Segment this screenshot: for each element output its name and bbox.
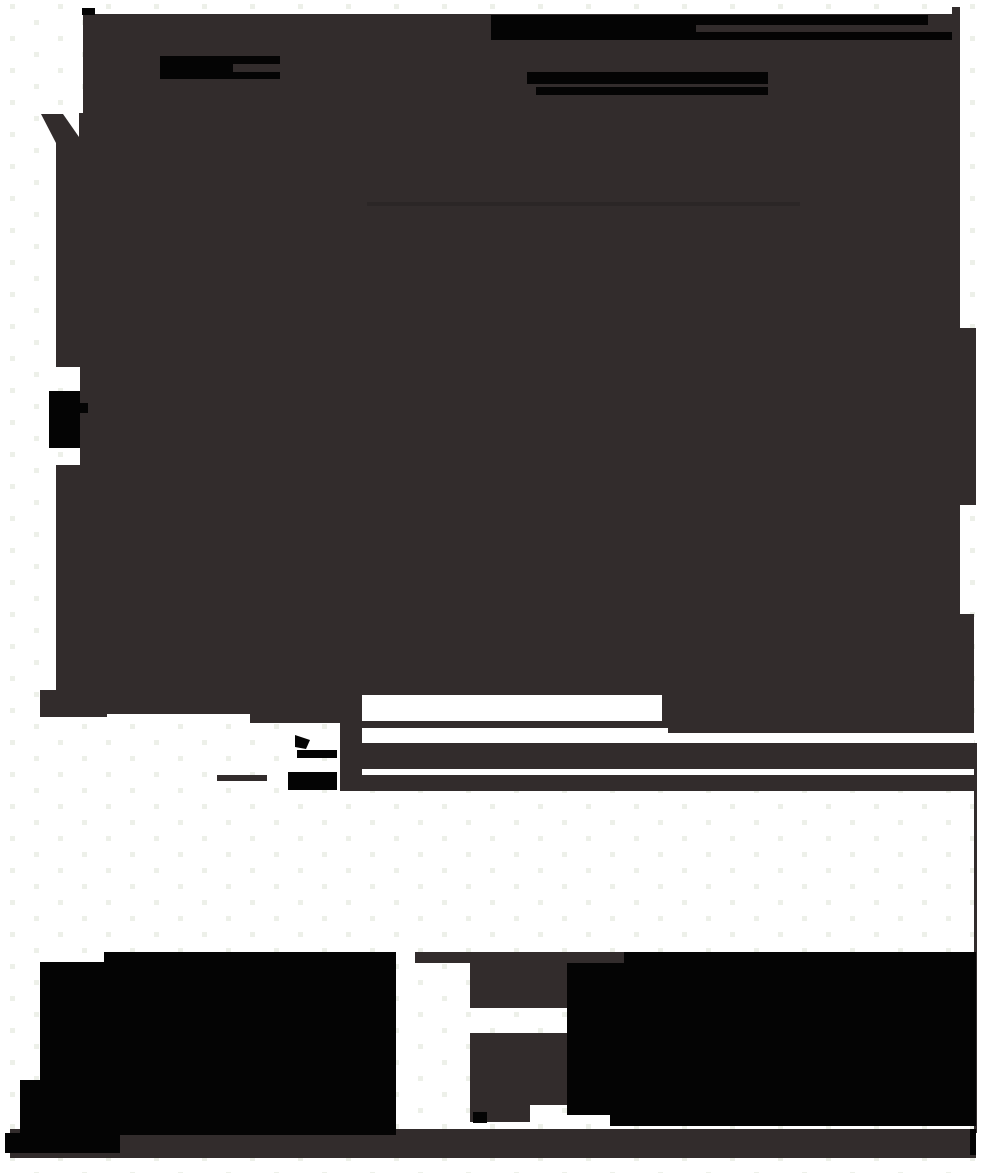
- bottom-left-mass: [20, 952, 396, 1135]
- funnel-stem: [470, 963, 567, 1008]
- icon-block: [288, 772, 337, 790]
- cursor-bar: [297, 750, 337, 758]
- white-slot-5: [362, 769, 974, 775]
- bottom-right-ledge: [559, 952, 624, 963]
- screenshot-canvas: [0, 0, 982, 1173]
- white-slot-2: [362, 728, 668, 740]
- silhouette-graphic: [0, 0, 982, 1173]
- pedestal-marks: [473, 1112, 487, 1123]
- top-left-square: [82, 8, 95, 15]
- white-slot-1: [362, 695, 662, 721]
- icon-line: [217, 775, 267, 781]
- left-side-blob-tab: [80, 403, 88, 413]
- white-slot-4: [362, 740, 974, 743]
- band-left-cap: [5, 1133, 120, 1153]
- top-redaction-bar-1: [491, 15, 928, 25]
- bottom-right-mass: [567, 952, 976, 1126]
- left-redaction-bar-notch: [233, 64, 280, 72]
- left-side-blob: [49, 391, 80, 448]
- top-redaction-bar-2: [491, 32, 952, 40]
- faint-divider-line: [367, 202, 800, 206]
- mid-redaction-bar-1: [527, 72, 768, 84]
- pedestal: [470, 1033, 567, 1105]
- main-silhouette: [40, 7, 976, 791]
- band-right-cap: [970, 1129, 976, 1155]
- mid-redaction-bar-2: [536, 87, 768, 95]
